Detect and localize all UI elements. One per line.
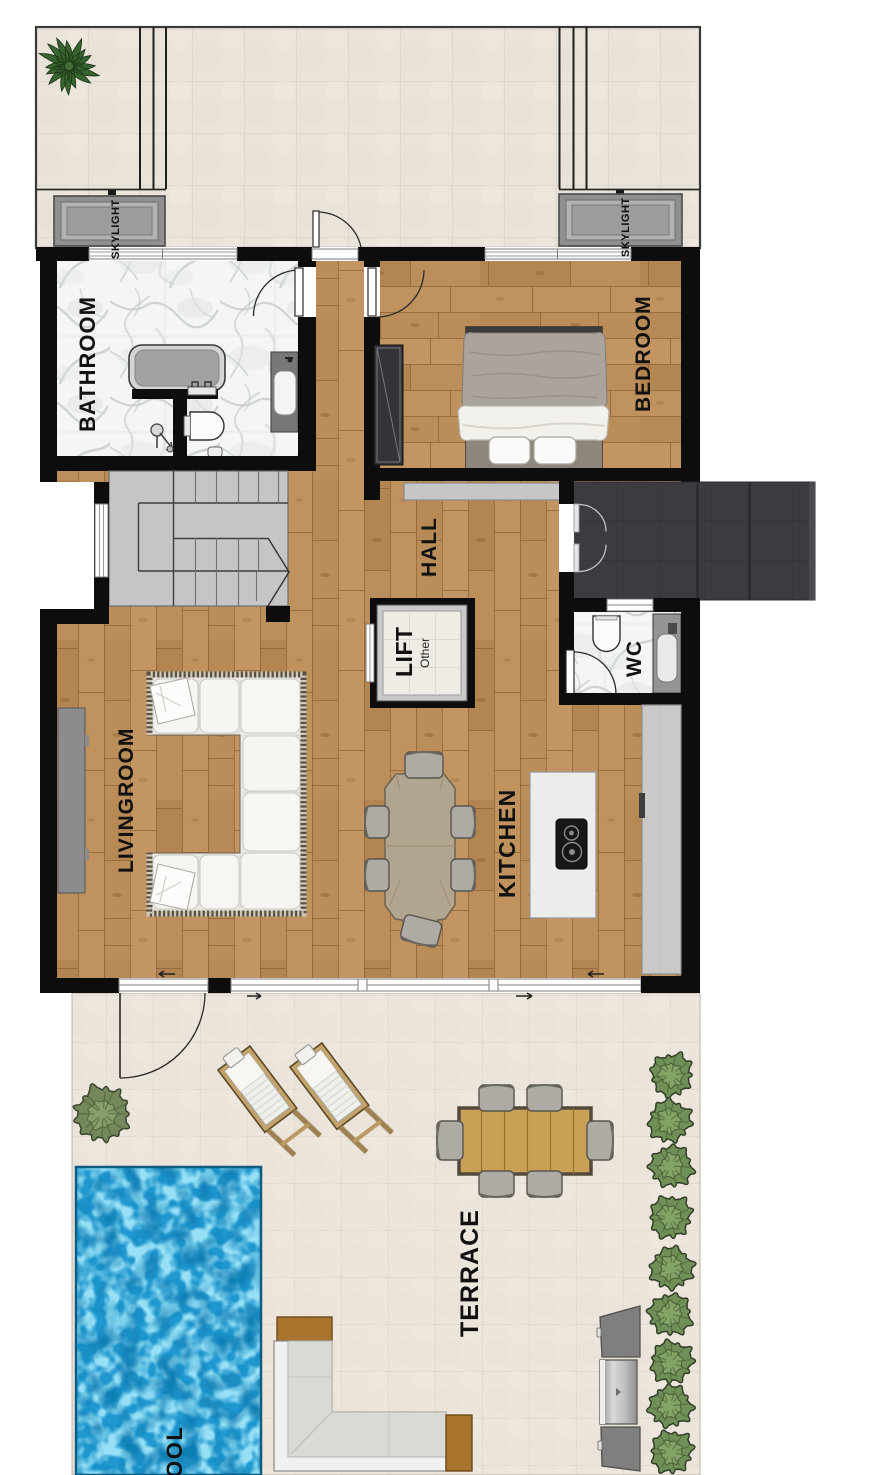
svg-text:BATHROOM: BATHROOM [75,296,100,432]
svg-text:BEDROOM: BEDROOM [632,295,655,412]
svg-text:KITCHEN: KITCHEN [494,789,520,898]
svg-text:SKYLIGHT: SKYLIGHT [110,199,122,259]
svg-text:SKYLIGHT: SKYLIGHT [620,197,632,257]
svg-text:LIVINGROOM: LIVINGROOM [115,728,138,873]
svg-text:TERRACE: TERRACE [456,1209,484,1337]
svg-text:Other: Other [418,638,432,668]
svg-text:LIFT: LIFT [391,626,417,677]
svg-text:HALL: HALL [418,517,441,577]
svg-text:WC: WC [623,640,646,677]
svg-text:POOL: POOL [162,1426,187,1475]
